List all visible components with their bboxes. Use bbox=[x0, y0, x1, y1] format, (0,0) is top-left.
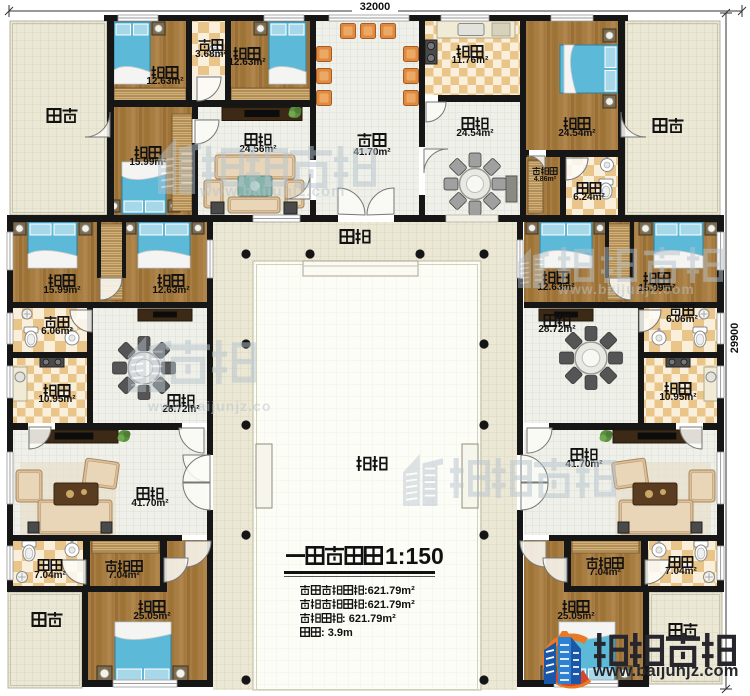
svg-text:www.baijunjz.com: www.baijunjz.com bbox=[592, 662, 739, 680]
svg-text:6.06m²: 6.06m² bbox=[41, 326, 73, 337]
svg-text:3.68m²: 3.68m² bbox=[195, 49, 227, 60]
svg-text:24.54m²: 24.54m² bbox=[456, 128, 494, 139]
svg-text:www.baijunjz.com: www.baijunjz.com bbox=[557, 281, 695, 297]
svg-text:15.99m²: 15.99m² bbox=[43, 285, 81, 296]
svg-text:32000: 32000 bbox=[360, 1, 391, 13]
svg-text:www.baijunjz.com: www.baijunjz.com bbox=[199, 183, 345, 200]
svg-text:6.24m²: 6.24m² bbox=[573, 192, 605, 203]
svg-text:24.54m²: 24.54m² bbox=[558, 128, 596, 139]
svg-text:1:150: 1:150 bbox=[385, 543, 444, 569]
svg-text:4.86m²: 4.86m² bbox=[534, 176, 557, 183]
svg-text:7.04m²: 7.04m² bbox=[34, 570, 66, 581]
svg-text:www.baijunjz.co: www.baijunjz.co bbox=[147, 398, 271, 414]
svg-text:25.05m²: 25.05m² bbox=[557, 611, 595, 622]
svg-text:11.76m²: 11.76m² bbox=[452, 55, 489, 66]
svg-text:29900: 29900 bbox=[729, 323, 741, 354]
svg-text:10.95m²: 10.95m² bbox=[659, 392, 697, 403]
svg-text:: 621.79m²: : 621.79m² bbox=[342, 613, 396, 625]
svg-text:41.70m²: 41.70m² bbox=[131, 498, 169, 509]
svg-text:7.04m²: 7.04m² bbox=[665, 566, 697, 577]
svg-text::621.79m²: :621.79m² bbox=[364, 585, 415, 597]
svg-text:6.06m²: 6.06m² bbox=[666, 314, 698, 325]
svg-text:12.63m²: 12.63m² bbox=[152, 285, 190, 296]
svg-text:7.04m²: 7.04m² bbox=[589, 567, 621, 578]
svg-text:7.04m²: 7.04m² bbox=[108, 570, 140, 581]
svg-text:25.05m²: 25.05m² bbox=[133, 611, 171, 622]
svg-text:12.63m²: 12.63m² bbox=[228, 57, 266, 68]
svg-text:28.72m²: 28.72m² bbox=[538, 324, 576, 335]
svg-text:12.63m²: 12.63m² bbox=[146, 76, 184, 87]
svg-text::621.79m²: :621.79m² bbox=[364, 599, 415, 611]
svg-text:: 3.9m: : 3.9m bbox=[321, 627, 353, 639]
svg-text:10.95m²: 10.95m² bbox=[38, 394, 76, 405]
